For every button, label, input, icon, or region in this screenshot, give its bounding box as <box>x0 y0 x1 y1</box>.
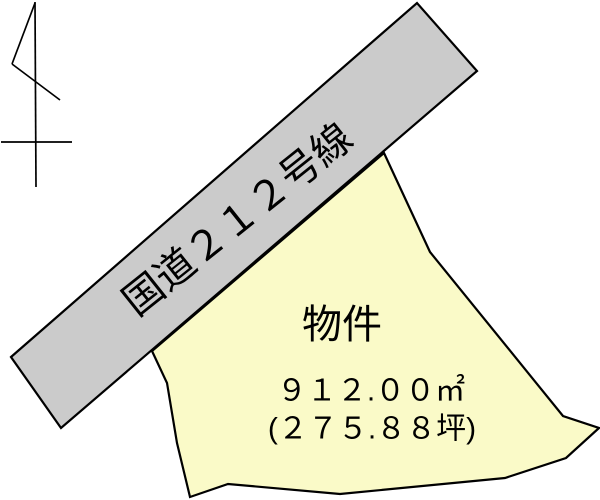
north-arrow-shaft <box>35 2 36 187</box>
site-plan-canvas: 国道２１２号線 物件 ９１２.００㎡ (２７５.８８坪) <box>0 0 600 500</box>
parcel-area-tsubo: (２７５.８８坪) <box>268 413 476 446</box>
site-plan-drawing: 国道２１２号線 物件 ９１２.００㎡ (２７５.８８坪) <box>0 0 600 500</box>
parcel-area-m2: ９１２.００㎡ <box>277 375 465 408</box>
parcel-label: 物件 <box>302 303 382 347</box>
